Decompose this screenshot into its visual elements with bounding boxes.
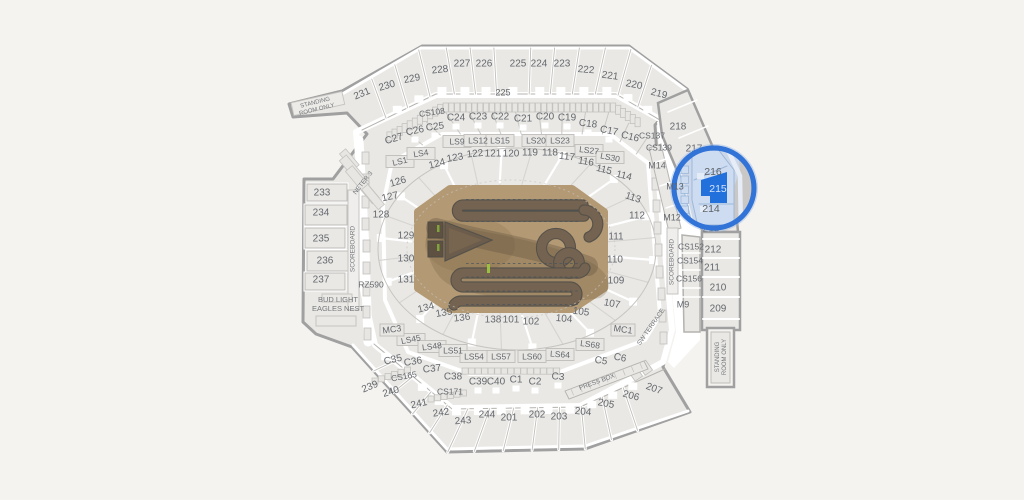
svg-text:C22: C22 — [491, 112, 510, 123]
svg-text:C38: C38 — [444, 372, 463, 383]
svg-text:222: 222 — [577, 64, 595, 76]
svg-text:BUD LIGHT: BUD LIGHT — [318, 295, 358, 304]
svg-text:STANDING: STANDING — [715, 341, 721, 372]
svg-text:243: 243 — [454, 415, 472, 427]
svg-text:RZ590: RZ590 — [358, 279, 384, 289]
svg-text:C18: C18 — [578, 118, 598, 131]
svg-text:215: 215 — [709, 183, 727, 195]
svg-text:EAGLES NEST: EAGLES NEST — [312, 304, 365, 313]
svg-text:C3: C3 — [551, 371, 565, 383]
svg-text:131: 131 — [398, 275, 415, 286]
svg-text:C1: C1 — [510, 375, 523, 386]
svg-text:C25: C25 — [425, 121, 445, 134]
svg-text:227: 227 — [454, 59, 471, 70]
svg-text:218: 218 — [670, 122, 687, 133]
svg-text:LS54: LS54 — [464, 351, 484, 361]
svg-text:M13: M13 — [666, 181, 684, 191]
svg-text:128: 128 — [373, 210, 390, 221]
svg-text:ROOM ONLY: ROOM ONLY — [722, 339, 728, 375]
svg-text:M14: M14 — [648, 160, 666, 170]
svg-text:CS154: CS154 — [677, 255, 703, 265]
svg-text:CS137: CS137 — [639, 130, 665, 140]
svg-text:109: 109 — [608, 276, 625, 287]
svg-text:201: 201 — [501, 413, 518, 424]
svg-text:101: 101 — [503, 315, 520, 326]
svg-text:C19: C19 — [558, 113, 577, 124]
svg-text:118: 118 — [542, 148, 558, 159]
svg-text:LS64: LS64 — [550, 349, 571, 360]
svg-text:211: 211 — [704, 263, 720, 274]
svg-text:LS57: LS57 — [491, 351, 511, 361]
svg-text:244: 244 — [479, 410, 496, 421]
svg-text:237: 237 — [313, 275, 330, 286]
svg-text:225: 225 — [510, 59, 527, 70]
svg-text:236: 236 — [317, 256, 334, 267]
svg-text:233: 233 — [314, 188, 331, 199]
svg-text:235: 235 — [313, 234, 330, 245]
svg-text:130: 130 — [398, 254, 415, 265]
svg-text:203: 203 — [551, 412, 568, 423]
svg-text:212: 212 — [705, 245, 722, 256]
svg-text:210: 210 — [710, 283, 727, 294]
svg-text:228: 228 — [431, 64, 449, 77]
svg-text:C24: C24 — [447, 113, 466, 124]
svg-text:CS152: CS152 — [678, 241, 704, 251]
svg-text:121: 121 — [485, 149, 502, 160]
svg-text:223: 223 — [554, 59, 571, 70]
svg-text:110: 110 — [607, 255, 623, 266]
svg-text:C21: C21 — [514, 114, 533, 125]
svg-text:LS15: LS15 — [490, 135, 510, 145]
svg-text:225: 225 — [495, 87, 510, 97]
svg-text:C2: C2 — [529, 377, 542, 388]
svg-text:112: 112 — [629, 211, 645, 222]
svg-text:C40: C40 — [487, 377, 506, 388]
svg-text:214: 214 — [702, 203, 720, 215]
svg-text:202: 202 — [529, 410, 546, 421]
svg-text:204: 204 — [574, 406, 592, 418]
svg-text:M9: M9 — [677, 299, 690, 309]
svg-text:104: 104 — [555, 313, 573, 325]
svg-text:C37: C37 — [422, 363, 442, 376]
svg-text:SCOREBOARD: SCOREBOARD — [669, 239, 676, 286]
svg-text:120: 120 — [503, 149, 520, 160]
svg-text:209: 209 — [710, 304, 727, 315]
svg-text:LS9: LS9 — [449, 136, 464, 146]
svg-text:LS12: LS12 — [468, 135, 488, 145]
svg-text:102: 102 — [523, 317, 540, 328]
svg-text:LS60: LS60 — [522, 351, 542, 361]
svg-text:122: 122 — [466, 148, 484, 161]
svg-text:216: 216 — [704, 166, 722, 178]
svg-text:CS156: CS156 — [676, 273, 702, 283]
svg-text:C5: C5 — [594, 355, 609, 368]
svg-text:111: 111 — [608, 232, 624, 243]
svg-text:224: 224 — [531, 59, 548, 70]
svg-text:SCOREBOARD: SCOREBOARD — [350, 226, 357, 273]
svg-text:M12: M12 — [663, 212, 681, 222]
svg-text:129: 129 — [398, 231, 415, 242]
svg-text:CS139: CS139 — [646, 142, 672, 152]
svg-text:LS20: LS20 — [526, 135, 546, 145]
svg-text:LS23: LS23 — [550, 135, 570, 145]
svg-text:226: 226 — [476, 59, 493, 70]
svg-text:CS171: CS171 — [437, 386, 463, 396]
svg-text:119: 119 — [522, 148, 538, 159]
svg-text:C20: C20 — [536, 112, 555, 123]
svg-text:234: 234 — [313, 208, 330, 219]
svg-text:136: 136 — [453, 312, 471, 325]
svg-text:117: 117 — [558, 151, 575, 164]
svg-text:C39: C39 — [469, 377, 488, 388]
svg-text:LS51: LS51 — [443, 345, 463, 355]
svg-text:C23: C23 — [469, 112, 488, 123]
